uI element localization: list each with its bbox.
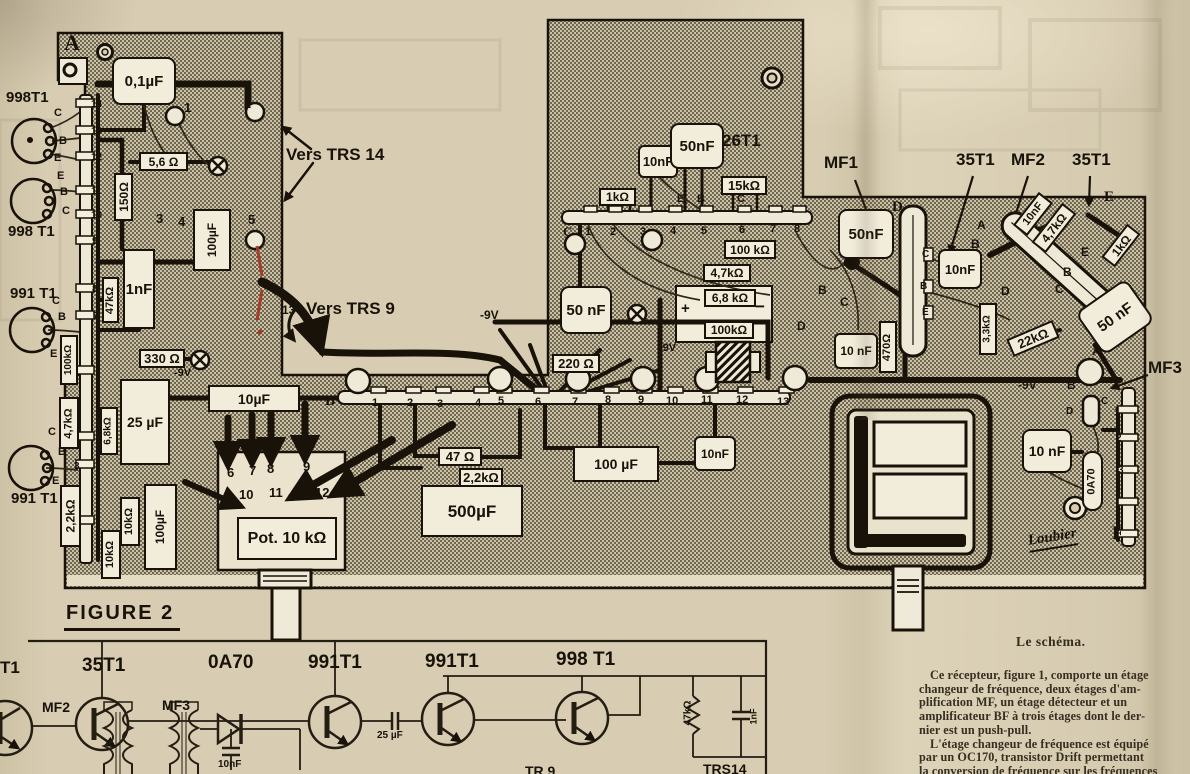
mf3-label: MF3 [1148,359,1182,376]
cap-100uf-left: 100µF [193,209,231,271]
res-4-7k-left: 4,7kΩ [59,397,79,449]
cap-10nf-4-label: 10 nF [840,345,871,357]
article-line: plification MF, un étage détecteur et un [919,696,1190,710]
pin-letter: C [1055,283,1064,295]
schematic-label-10nf: 10nF [218,760,241,770]
pin-letter: C [840,296,849,308]
res-150ohm-label: 150Ω [118,182,130,212]
res-6-8k-left: 6,8kΩ [100,407,118,455]
res-4-7k-2: 4,7kΩ [703,264,751,282]
res-47ohm-label: 47 Ω [446,450,475,463]
pin-letter: C [52,296,60,307]
potentiometer-shaft [259,570,311,640]
cap-10nf-4: 10 nF [834,333,878,369]
article-line: nier est un push-pull. [919,724,1190,738]
res-5-6ohm-label: 5,6 Ω [149,156,179,168]
cap-100uf-b: 100µF [144,484,177,570]
terminal-number: 3 [437,399,443,410]
pot-wire-number: 8 [267,462,274,475]
pin-letter: E [52,476,59,487]
terminal-number: 9 [92,237,98,247]
terminal-number: 4 [670,226,676,237]
pin-letter: C [54,108,62,119]
schematic-label-998t1: 998 T1 [556,650,615,669]
pin-letter: B [697,194,705,205]
figure-caption: FIGURE 2 [64,602,180,631]
cap-0-1uf: 0,1µF [112,57,176,105]
res-100k-2: 100 kΩ [724,240,776,259]
res-10k-b: 10kΩ [101,530,121,579]
cap-10nf-5: 10 nF [1022,429,1072,473]
terminal-number: 14 [91,100,102,110]
schematic-label-35t1: 35T1 [82,656,125,675]
cap-500uf-label: 500µF [448,503,497,520]
article-line: par un OC170, transistor Drift permettan… [919,751,1190,765]
supply-label-9v-right: -9V [1018,379,1037,391]
cap-10nf-1-label: 10nF [643,155,673,168]
strip-b-letter: B [325,394,335,409]
schematic-label-991t1-b: 991T1 [425,652,479,671]
res-10k-a: 10kΩ [120,497,140,546]
cap-100uf-c-label: 100 µF [594,457,638,471]
res-470ohm: 470Ω [879,321,897,373]
mf1-label: MF1 [824,154,858,171]
pin-letter: E [57,171,64,182]
res-3-3k: 3,3kΩ [979,303,997,355]
pin-letter: D [1001,285,1010,297]
cap-10uf: 10µF [208,385,300,412]
res-100k-3: 100kΩ [704,321,754,339]
terminal-number: 5 [498,396,504,407]
terminal-number: 3 [1118,466,1124,476]
terminal-number: 7 [770,224,776,235]
cap-10nf-5-label: 10 nF [1029,444,1066,458]
pin-letter: D [892,200,903,215]
terminal-number: 11 [91,187,102,197]
pin-letter: C [922,250,929,260]
cap-50nf-1-label: 50nF [679,139,714,154]
schematic-label-47k: 47kΩ [683,701,693,726]
pot-wire-number: 7 [249,464,256,477]
terminal-number: 7 [93,312,99,322]
magazine-page: A998T1998 T1991 T1991 T1Vers TRS 14Vers … [0,0,1190,774]
res-10k-b-label: 10kΩ [106,541,117,568]
potentiometer-label: Pot. 10 kΩ [248,531,327,547]
terminal-number: 12 [736,395,748,406]
terminal-number: 7 [572,397,578,408]
cap-25uf-left-label: 25 µF [127,415,163,429]
schematic-label-1nf: 1nF [750,708,759,724]
transistor-label-998t1-bottom: 998 T1 [8,224,55,239]
supply-label-9v-left: -9V [174,368,191,379]
terminal-number: 8 [605,395,611,406]
column-heading: Le schéma. [1016,634,1086,650]
res-3-3k-label: 3,3kΩ [983,315,993,342]
res-2-2k-left: 2,2kΩ [60,485,81,547]
terminal-number: 8 [794,224,800,235]
pin-letter: E [922,308,929,318]
transistor-label-998t1-top: 998T1 [6,90,49,105]
pot-wire-number: 9 [303,460,310,473]
pin-letter: B [818,284,827,296]
res-15k-label: 15kΩ [728,179,760,192]
cap-10uf-label: 10µF [238,392,270,406]
res-150ohm: 150Ω [114,173,133,221]
pot-wire-number: 12 [315,486,329,499]
res-47k-label: 47kΩ [105,286,116,313]
article-line: L'étage changeur de fréquence est équipé [919,738,1190,752]
res-2-2k-left-label: 2,2kΩ [65,500,77,533]
res-1k-label: 1kΩ [606,191,629,203]
terminal-number: 8 [92,285,98,295]
res-10k-a-label: 10kΩ [125,508,136,535]
pin-letter: E [677,194,684,205]
terminal-number: 1 [372,398,378,409]
schematic-label-trs14: TRS14 [703,762,747,774]
supply-label-9v-centerleft: -9V [480,309,499,321]
res-220ohm-label: 220 Ω [558,357,594,370]
pin-letter: B [60,187,68,198]
pot-wire-number: 6 [227,466,234,479]
pad-number: 2 [244,97,251,110]
pin-letter: E [50,349,57,360]
wire-number-14: 14 [312,334,325,346]
pot-wire-number: 10 [239,488,253,501]
terminal-number: 10 [91,211,102,221]
wire-number-13: 13 [282,304,295,316]
terminal-number: 2 [610,227,616,238]
corner-label-f: F [1112,524,1124,543]
cap-10nf-2-label: 10nF [701,448,729,460]
pin-letter: C [737,194,745,205]
diode-oa70-label: 0A70 [1087,468,1098,494]
terminal-number: 2 [1116,434,1122,444]
pin-letter: B [59,136,67,147]
schematic-label-0a70: 0A70 [208,653,253,672]
potentiometer: Pot. 10 kΩ [237,517,337,560]
res-470ohm-label: 470Ω [883,333,894,360]
board-bottom-margin [67,575,1143,586]
terminal-number: 9 [638,395,644,406]
terminal-number: 3 [640,227,646,238]
res-100k-left-label: 100kΩ [64,345,74,375]
pin-letter: C [1101,397,1108,407]
res-100k-3-label: 100kΩ [711,324,747,336]
pin-letter: E [54,153,61,164]
terminal-number: 6 [739,225,745,236]
res-1k: 1kΩ [599,188,636,206]
res-6-8k-2: 6,8 kΩ [704,289,756,307]
polarity-plus: + [681,301,690,316]
res-100k-left: 100kΩ [60,335,78,385]
output-transformer [832,396,990,630]
cap-100uf-b-label: 100µF [155,510,167,544]
pin-letter: E [1081,246,1089,258]
schematic-label-mf2: MF2 [42,700,70,714]
pin-letter: C [48,427,56,438]
res-2-2k-2-label: 2,2kΩ [463,471,499,484]
terminal-number: 11 [701,395,713,406]
res-5-6ohm: 5,6 Ω [139,152,188,171]
schematic-label-tr9: TR 9 [525,764,555,774]
pin-letter: B [1063,266,1072,278]
pin-letter: E [1104,190,1114,205]
cap-100uf-left-label: 100µF [206,223,218,257]
pad-number: 5 [248,213,255,226]
terminal-number: 10 [666,396,678,407]
res-330ohm: 330 Ω [139,349,185,368]
pin-letter: B [58,312,66,323]
terminal-number: 12 [91,153,102,163]
vers-trs9-label: Vers TRS 9 [306,300,395,317]
pin-letter: B [920,282,927,292]
cap-50nf-2: 50 nF [560,286,612,334]
vers-trs14-label: Vers TRS 14 [286,146,384,163]
terminal-number: 1 [1114,408,1120,418]
res-47ohm: 47 Ω [438,447,482,466]
pin-letter: D [1066,407,1073,417]
corner-label-a: A [64,32,80,54]
pin-letter: A [977,219,986,231]
res-220ohm: 220 Ω [552,354,600,373]
schematic-label-25uf: 25 µF [377,731,403,741]
res-47k: 47kΩ [102,277,119,323]
article-text-column: Ce récepteur, figure 1, comporte un étag… [919,669,1190,774]
schematic-label-991t1-a: 991T1 [308,653,362,672]
article-line: Ce récepteur, figure 1, comporte un étag… [919,669,1190,683]
transistor-label-991t1-mid: 991 T1 [10,286,57,301]
pin-letter: D [797,320,806,332]
cap-50nf-1: 50nF [670,123,724,169]
res-6-8k-2-label: 6,8 kΩ [712,292,748,304]
cap-50nf-3-label: 50nF [848,227,883,242]
res-100k-2-label: 100 kΩ [730,244,770,256]
schematic-label-t1: T1 [0,659,20,676]
terminal-number: 6 [535,397,541,408]
pad-number: 1 [184,101,191,114]
terminal-number: 1 [585,227,591,238]
res-15k: 15kΩ [721,176,767,195]
transistor-label-35t1-b: 35T1 [1072,151,1111,168]
res-330ohm-label: 330 Ω [144,352,180,365]
mf2-label: MF2 [1011,151,1045,168]
res-6-8k-left-label: 6,8kΩ [104,417,114,444]
pad-number: 4 [178,215,185,228]
cap-100uf-c: 100 µF [573,446,659,482]
pin-letter: B [1067,379,1076,391]
article-line: changeur de fréquence, deux étages d'am- [919,683,1190,697]
cap-10nf-3: 10nF [938,249,982,289]
transistor-label-26t1: 26T1 [722,132,761,149]
cap-50nf-2-label: 50 nF [566,303,605,318]
cap-1nf: 1nF [123,249,155,329]
cap-10nf-3-label: 10nF [945,263,975,276]
terminal-number: 3 [74,462,80,472]
pin-letter: C [62,206,70,217]
cap-50nf-diag-label: 50 nF [1095,300,1136,335]
article-line: amplificateur BF à trois étages dont le … [919,710,1190,724]
terminal-number: 2 [407,398,413,409]
pot-wire-number: 11 [269,486,283,499]
article-line: la conversion de fréquence sur les fréqu… [919,765,1190,774]
cap-25uf-left: 25 µF [120,379,170,465]
cap-10nf-2: 10nF [694,436,736,471]
cap-500uf: 500µF [421,485,523,537]
res-4-7k-left-label: 4,7kΩ [64,408,75,438]
pad-number: 3 [156,212,163,225]
terminal-number: 13 [91,127,102,137]
schematic-label-mf3: MF3 [162,698,190,712]
strip-top-letter-c: C [563,225,572,238]
transistor-label-35t1-a: 35T1 [956,151,995,168]
supply-label-9v-center: -9V [659,343,676,354]
polarity-minus: − [755,298,765,315]
cap-1nf-label: 1nF [126,282,153,297]
terminal-number: 4 [475,398,481,409]
cap-50nf-3: 50nF [838,209,894,259]
terminal-number: 13 [777,397,789,408]
transistor-label-991t1-low: 991 T1 [11,491,58,506]
res-4-7k-2-label: 4,7kΩ [711,267,744,279]
diode-oa70: 0A70 [1082,451,1103,511]
cap-0-1uf-label: 0,1µF [125,74,164,89]
terminal-number: 5 [701,226,707,237]
